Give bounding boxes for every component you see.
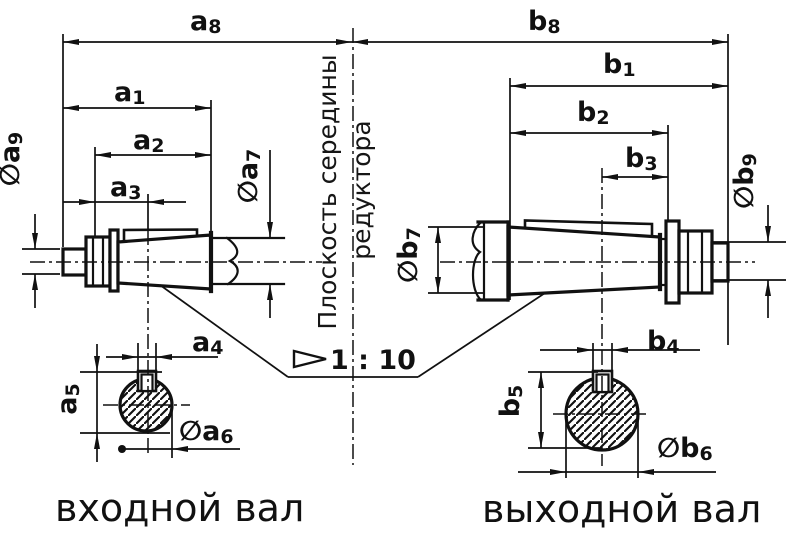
dim-label-a7: ∅a7 xyxy=(233,149,265,204)
dim-label-a3: a3 xyxy=(110,172,141,204)
dim-label-b6: ∅b6 xyxy=(657,433,713,465)
annotations: Плоскость середины редуктора входной вал… xyxy=(55,54,761,531)
dim-label-b5: b5 xyxy=(495,385,527,418)
dim-label-a2: a2 xyxy=(133,125,164,157)
dim-label-a1: a1 xyxy=(114,77,145,109)
input-shaft-caption: входной вал xyxy=(55,486,304,530)
dim-label-b7: ∅b7 xyxy=(393,227,425,283)
output-shaft-cone xyxy=(508,227,660,295)
technical-drawing-page: 1 : 10 a8 b8 a1 a2 a3 a4 ∅a6 ∅a7 ∅a9 a5 … xyxy=(0,0,793,536)
reducer-shafts-drawing: 1 : 10 a8 b8 a1 a2 a3 a4 ∅a6 ∅a7 ∅a9 a5 … xyxy=(0,0,793,536)
taper-leader-right xyxy=(418,293,545,377)
dim-label-a6: ∅a6 xyxy=(179,416,234,448)
output-shaft-caption: выходной вал xyxy=(482,487,761,531)
center-plane-label-line1: Плоскость середины xyxy=(313,54,342,329)
taper-ratio-label: 1 : 10 xyxy=(330,345,416,376)
dim-a6-dot-termination xyxy=(118,445,126,453)
dim-label-a4: a4 xyxy=(192,327,223,359)
dim-label-a8: a8 xyxy=(190,6,221,38)
taper-symbol-icon xyxy=(294,351,326,367)
input-shaft-break-line xyxy=(227,238,238,284)
input-shaft-view xyxy=(63,230,284,292)
dim-label-b2: b2 xyxy=(577,97,610,129)
dim-label-a5: a5 xyxy=(52,383,84,414)
dim-label-b3: b3 xyxy=(625,143,658,175)
dim-label-b9: ∅b9 xyxy=(729,153,761,209)
dim-label-b4: b4 xyxy=(647,326,680,358)
dim-label-b8: b8 xyxy=(528,6,561,38)
output-shaft-break-line xyxy=(473,222,481,300)
dim-label-b1: b1 xyxy=(603,49,636,81)
center-plane-label-line2: редуктора xyxy=(347,120,376,259)
input-shaft-cross-section xyxy=(120,371,172,431)
dim-label-a9: ∅a9 xyxy=(0,132,27,187)
input-section-key xyxy=(142,375,153,392)
